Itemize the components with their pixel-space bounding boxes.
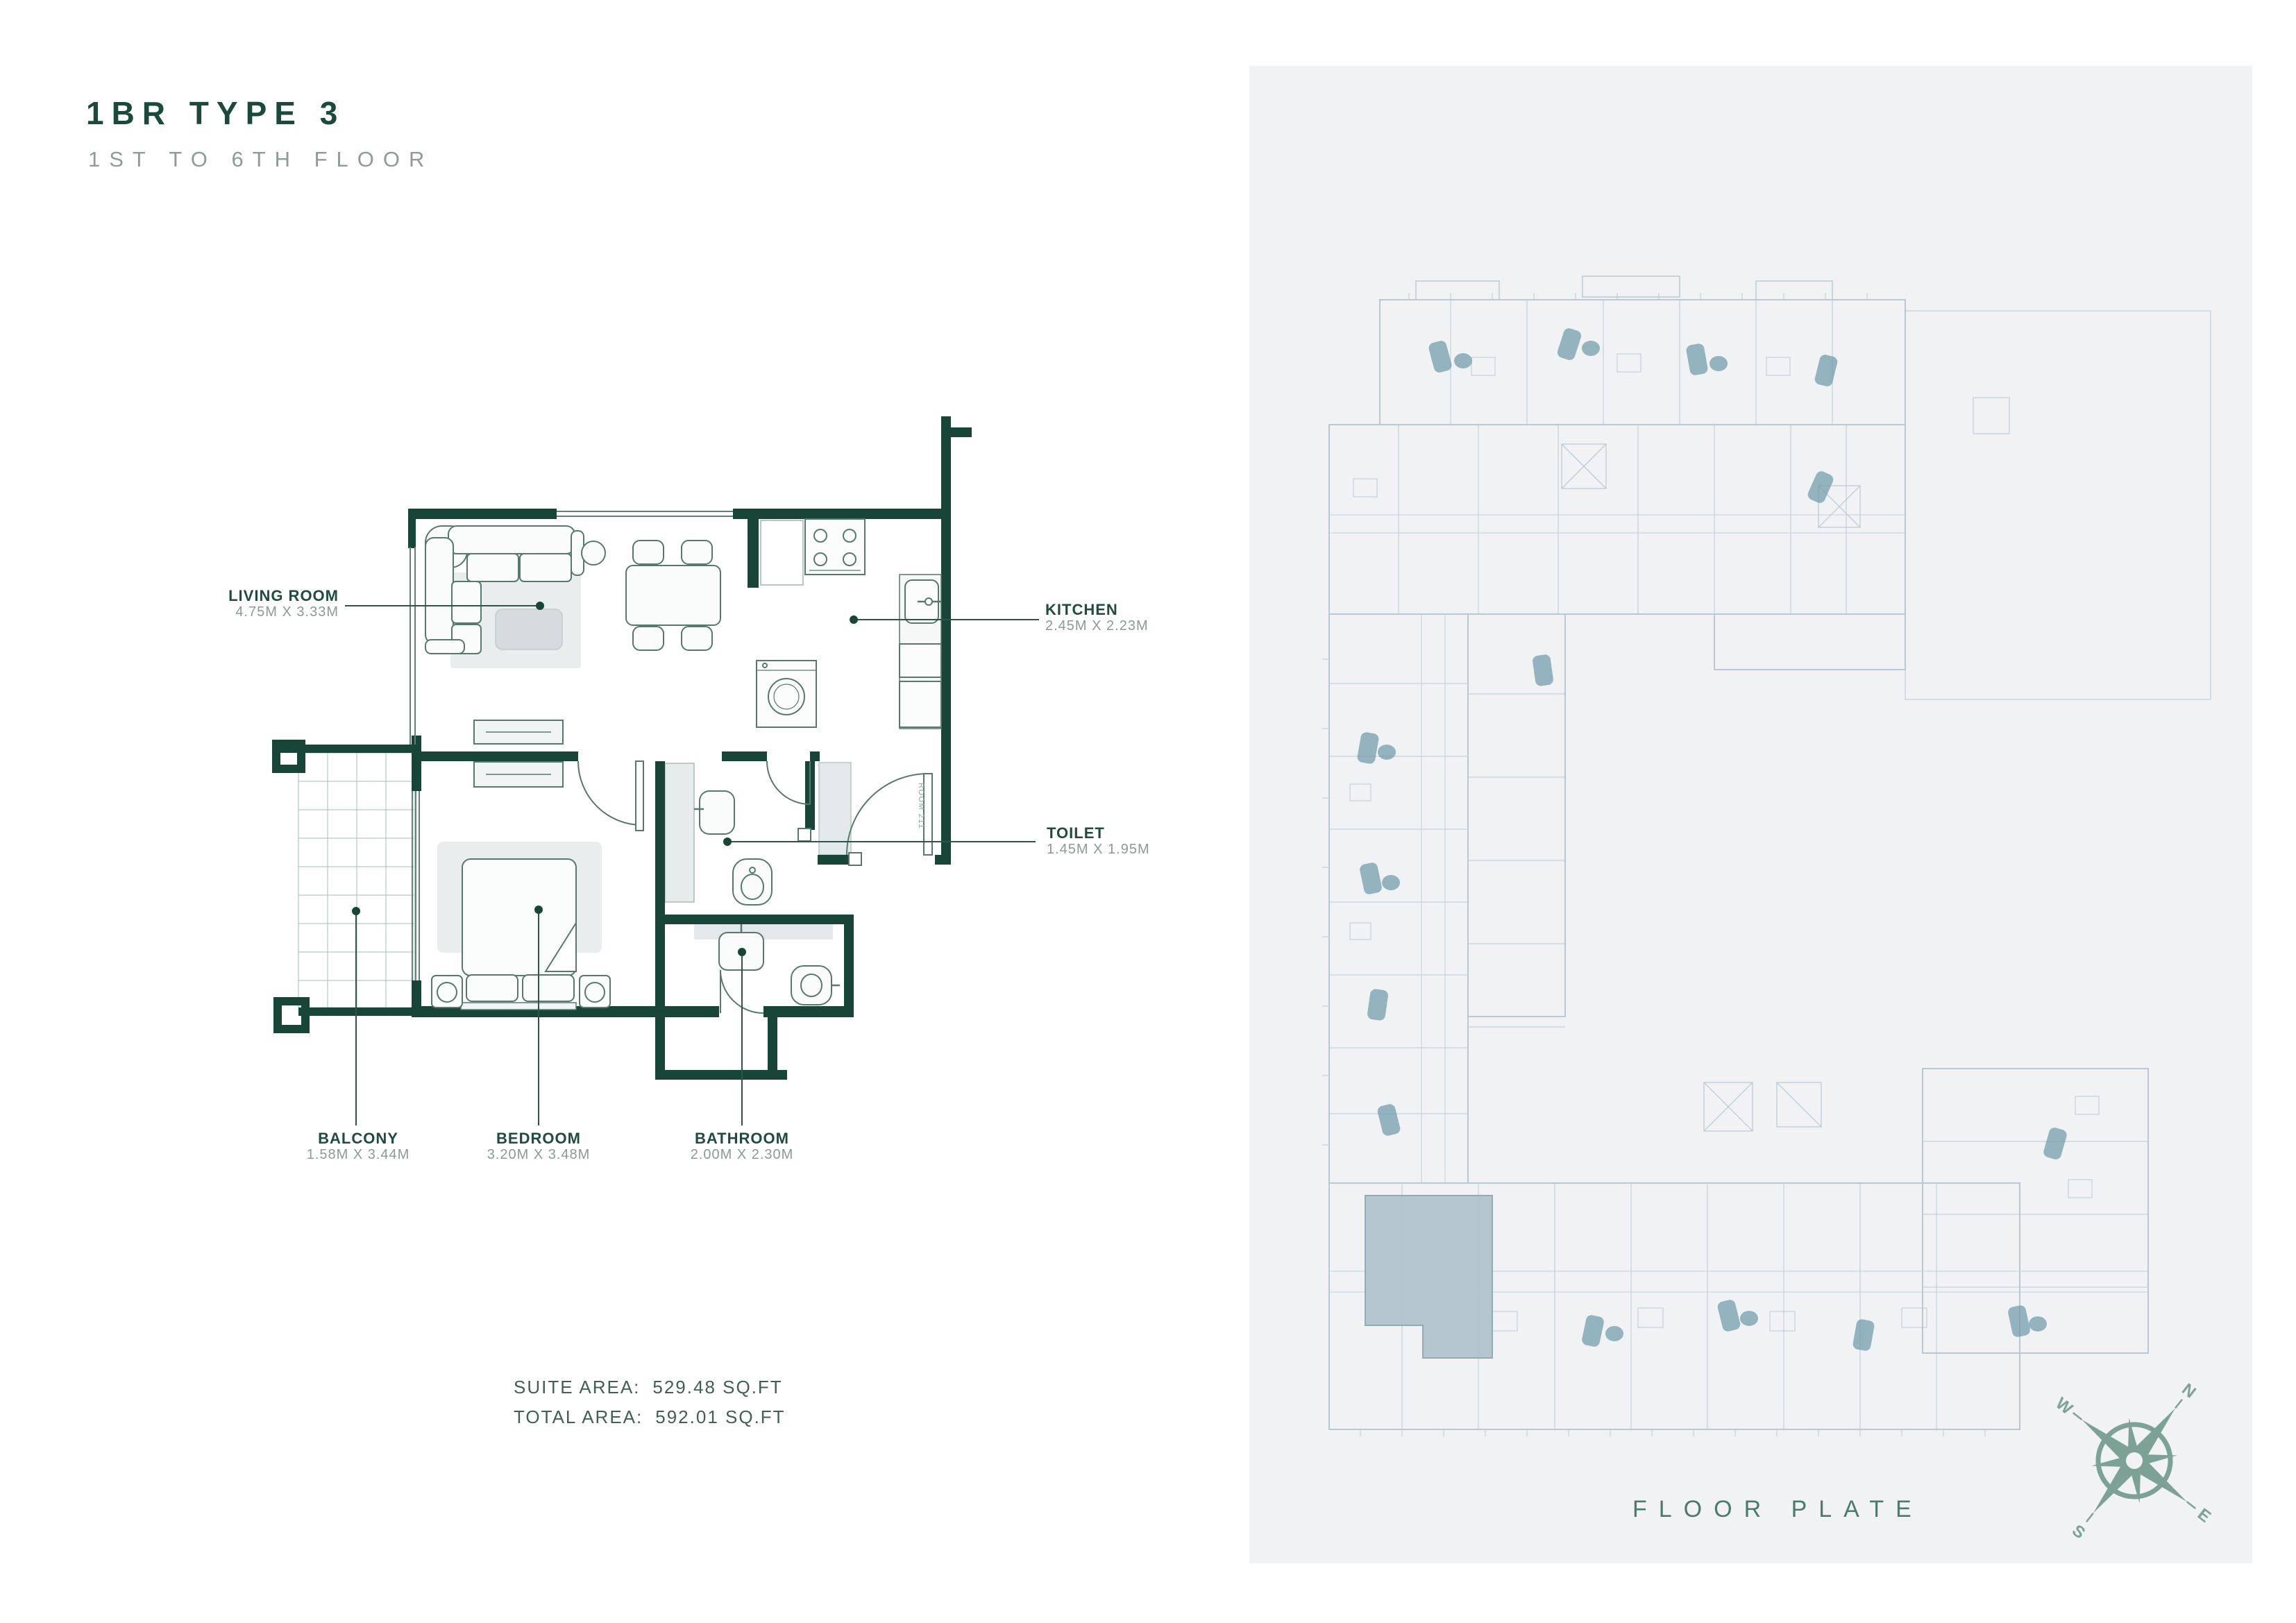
area-summary: SUITE AREA:529.48 SQ.FT TOTAL AREA:592.0… — [514, 1378, 786, 1438]
toilet-fixtures — [694, 791, 772, 905]
suite-area-row: SUITE AREA:529.48 SQ.FT — [514, 1378, 786, 1396]
label-bedroom: BEDROOM 3.20M X 3.48M — [448, 1130, 629, 1163]
balcony-dims: 1.58M X 3.44M — [268, 1147, 448, 1163]
suite-area-value: 529.48 SQ.FT — [652, 1377, 782, 1397]
label-living-room: LIVING ROOM 4.75M X 3.33M — [228, 587, 339, 620]
suite-area-label: SUITE AREA: — [514, 1377, 640, 1397]
page-title: 1BR TYPE 3 — [86, 94, 345, 132]
page-graphics: N E S W — [0, 0, 2296, 1623]
bathroom-dims: 2.00M X 2.30M — [652, 1147, 832, 1163]
balcony-name: BALCONY — [268, 1130, 448, 1147]
bedroom-name: BEDROOM — [448, 1130, 629, 1147]
bathroom-name: BATHROOM — [652, 1130, 832, 1147]
label-kitchen: KITCHEN 2.45M X 2.23M — [1045, 601, 1149, 634]
total-area-value: 592.01 SQ.FT — [655, 1407, 785, 1427]
toilet-name: TOILET — [1047, 824, 1150, 842]
label-bathroom: BATHROOM 2.00M X 2.30M — [652, 1130, 832, 1163]
page-subtitle: 1ST TO 6TH FLOOR — [88, 147, 433, 172]
toilet-dims: 1.45M X 1.95M — [1047, 842, 1150, 858]
total-area-row: TOTAL AREA:592.01 SQ.FT — [514, 1408, 786, 1426]
dining-set — [626, 541, 720, 650]
floor-plan-page: N E S W — [0, 0, 2296, 1623]
floor-plate-panel: N E S W — [1249, 66, 2269, 1597]
balcony-posts — [276, 744, 305, 1029]
entry-door-tag: ROOM 211 — [917, 783, 925, 829]
living-room-dims: 4.75M X 3.33M — [228, 604, 339, 620]
total-area-label: TOTAL AREA: — [514, 1407, 643, 1427]
living-room-name: LIVING ROOM — [228, 587, 339, 604]
floor-plate-caption: FLOOR PLATE — [1632, 1496, 1923, 1523]
label-toilet: TOILET 1.45M X 1.95M — [1047, 824, 1150, 858]
panel-background — [1249, 66, 2252, 1563]
label-balcony: BALCONY 1.58M X 3.44M — [268, 1130, 448, 1163]
kitchen-name: KITCHEN — [1045, 601, 1149, 618]
unit-floor-plan-drawing — [276, 416, 1039, 1125]
kitchen-dims: 2.45M X 2.23M — [1045, 618, 1149, 634]
bedroom-dims: 3.20M X 3.48M — [448, 1147, 629, 1163]
